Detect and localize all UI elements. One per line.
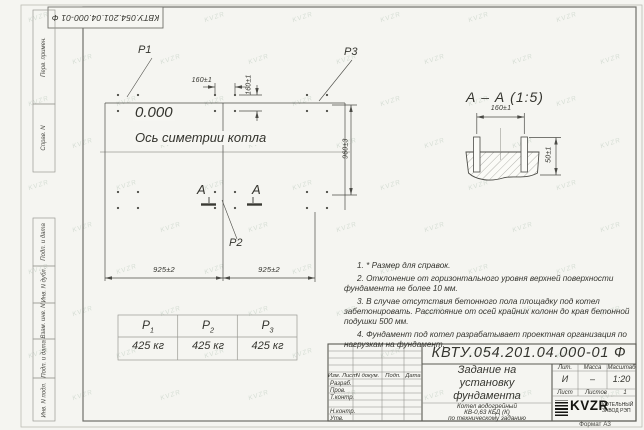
- note-2: 2. Отклонение от горизонтального уровня …: [344, 274, 638, 294]
- sign-label-prov: Пров.: [330, 388, 346, 394]
- format-label: Формат А3: [555, 422, 635, 429]
- drawing-title-line-2: установку: [422, 378, 552, 390]
- load-point-label-p3: P3: [344, 47, 357, 59]
- note-3: 3. В случае отсутствия бетонного пола пл…: [344, 297, 638, 327]
- rev-header-data: Дата: [404, 373, 422, 379]
- rev-header-izm-list: Изм. Лист: [328, 373, 353, 379]
- margin-label-inv-podl: Инв. N подл.: [33, 378, 55, 421]
- sign-label-nkontr: Н.контр.: [330, 409, 355, 415]
- margin-label-vzam-inv: Взам. инв. N: [33, 303, 55, 339]
- sign-label-utv: Утв.: [330, 416, 344, 422]
- section-dim-160: 160±1: [478, 105, 524, 112]
- corner-stamp-number: КВТУ.054.201.04.000-01 Ф: [48, 7, 163, 28]
- margin-label-sprav-n: Справ. N: [33, 104, 55, 172]
- load-table-value-p2: 425 кг: [178, 341, 238, 353]
- margin-label-inv-dubl: Инв. N дубл.: [33, 266, 55, 303]
- list-label: Лист: [552, 390, 578, 396]
- rev-header-podp: Подп.: [382, 373, 404, 379]
- load-table-header-p3: P3: [238, 319, 297, 334]
- doc-number: КВТУ.054.201.04.000-01 Ф: [424, 346, 634, 361]
- elevation-mark: 0.000: [133, 105, 175, 121]
- masshtab-value: 1:20: [607, 375, 636, 384]
- section-letter-right: А: [252, 183, 261, 197]
- drawing-title-line-3: фундамента: [422, 391, 552, 403]
- sign-label-razrab: Разраб.: [330, 381, 352, 387]
- margin-label-podp-data-1: Подп. и дата: [33, 218, 55, 266]
- kvzr-logo-barcode: [555, 400, 568, 416]
- boiler-symmetry-axis-label: Ось симетрии котла: [133, 131, 268, 145]
- dim-925-left: 925±2: [140, 266, 188, 274]
- section-cut-marks: [201, 197, 262, 205]
- load-point-label-p2: P2: [229, 238, 242, 250]
- load-point-label-p1: P1: [138, 45, 151, 57]
- product-name-line-3: по техническому заданию: [422, 416, 552, 423]
- drawing-sheet: KVZRKVZRKVZRKVZRKVZRKVZRKVZRKVZRKVZRKVZR…: [0, 0, 644, 430]
- load-table-header-p1: P1: [118, 319, 178, 334]
- kvzr-logo-caption-line-2: ЗАВОД РЭП: [602, 409, 631, 414]
- margin-label-perv-primen: Перв. примен.: [33, 10, 55, 104]
- massa-value: –: [578, 375, 607, 384]
- massa-header: Масса: [578, 365, 607, 371]
- section-dim-50: 50±1: [545, 140, 552, 170]
- dim-160-vertical: 160±1: [245, 68, 252, 102]
- dim-160-horizontal: 160±1: [178, 77, 212, 84]
- lit-value: И: [552, 375, 578, 384]
- dim-960: 960±3: [342, 131, 349, 167]
- listov-label: Листов: [578, 390, 614, 396]
- rev-header-n-dokum: N докум.: [353, 373, 382, 379]
- drawing-title-line-1: Задание на: [422, 365, 552, 377]
- load-table-header-p2: P2: [178, 319, 238, 334]
- section-letter-left: А: [197, 183, 206, 197]
- section-view-title: А – А (1:5): [450, 90, 560, 105]
- dim-925-right: 925±2: [245, 266, 293, 274]
- notes-block: 1. * Размер для справок. 2. Отклонение о…: [344, 261, 638, 353]
- masshtab-header: Масштаб: [607, 365, 636, 371]
- lit-header: Лит.: [552, 365, 578, 371]
- sign-label-tkontr: Т.контр.: [330, 395, 354, 401]
- margin-label-podp-data-2: Подп. и дата: [33, 339, 55, 378]
- note-1: 1. * Размер для справок.: [344, 261, 638, 271]
- load-table-value-p3: 425 кг: [238, 341, 297, 353]
- listov-value: 1: [614, 390, 636, 396]
- load-table-value-p1: 425 кг: [118, 341, 178, 353]
